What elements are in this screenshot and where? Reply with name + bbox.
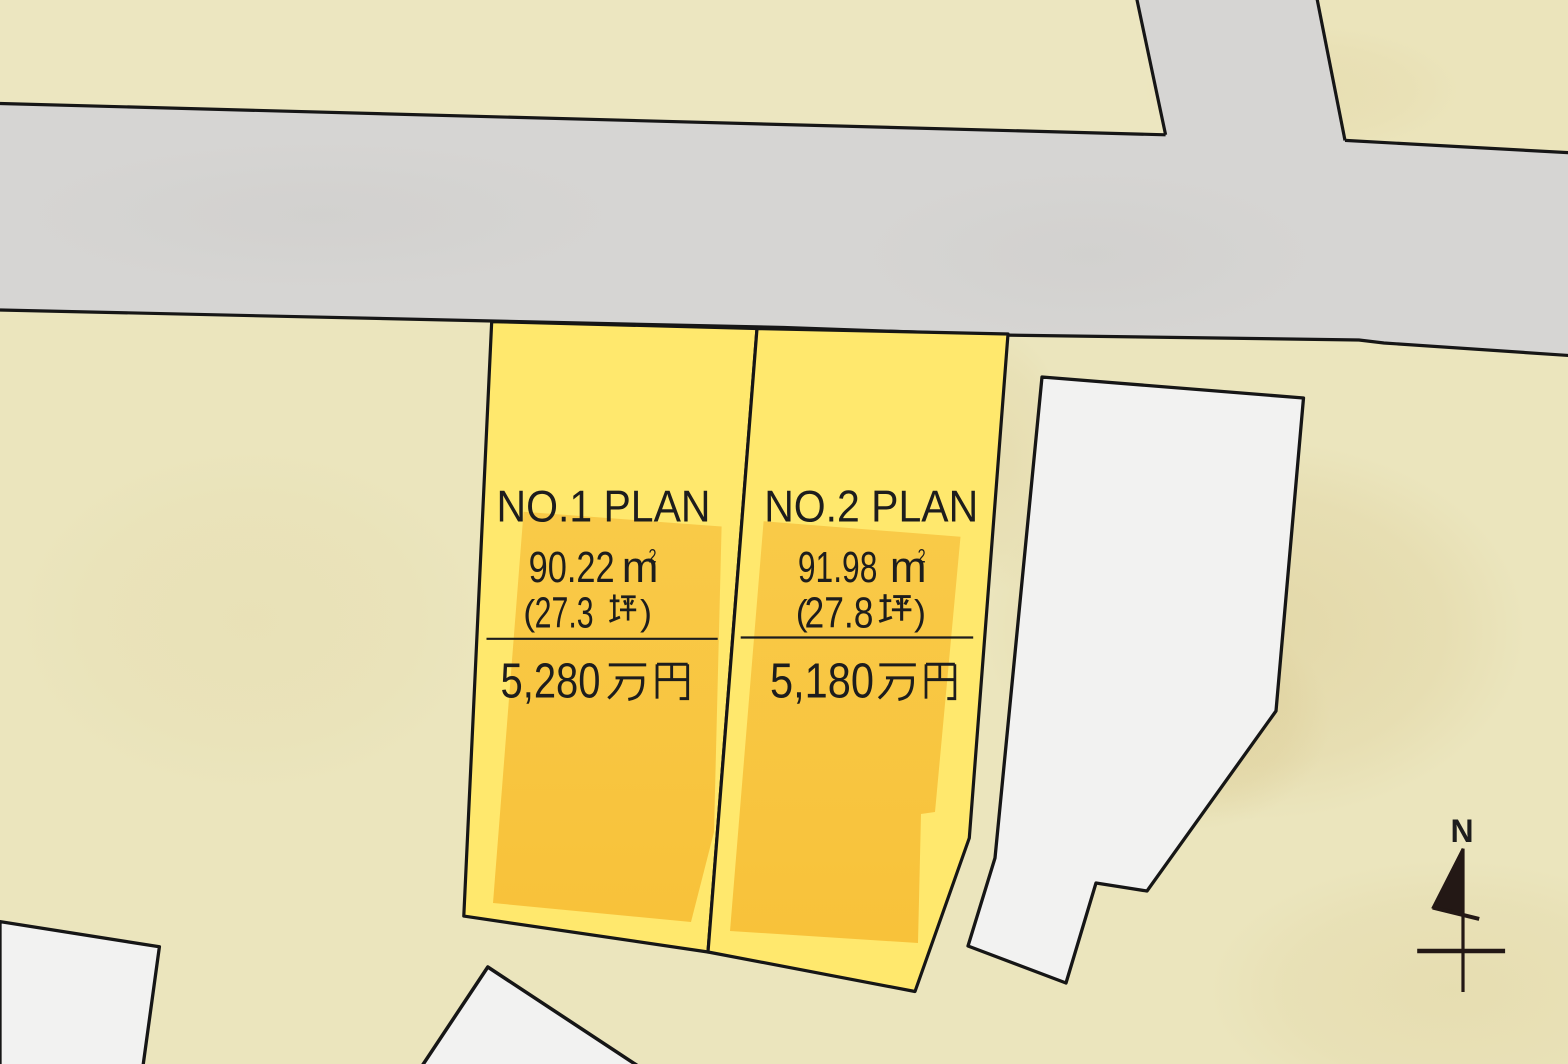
svg-text:): ): [914, 592, 926, 633]
svg-text:27.3: 27.3: [535, 589, 594, 638]
svg-text:2: 2: [649, 547, 657, 568]
svg-text:5,280: 5,280: [501, 653, 601, 708]
svg-text:91.98: 91.98: [798, 543, 878, 592]
svg-text:90.22: 90.22: [529, 543, 615, 592]
svg-text:): ): [640, 592, 652, 633]
svg-text:NO.2 PLAN: NO.2 PLAN: [764, 482, 978, 532]
svg-text:2: 2: [918, 547, 926, 568]
svg-text:5,180: 5,180: [770, 653, 874, 708]
svg-text:N: N: [1450, 813, 1473, 849]
svg-text:NO.1 PLAN: NO.1 PLAN: [497, 482, 711, 532]
svg-text:(: (: [523, 592, 535, 633]
svg-text:27.8: 27.8: [805, 589, 874, 638]
